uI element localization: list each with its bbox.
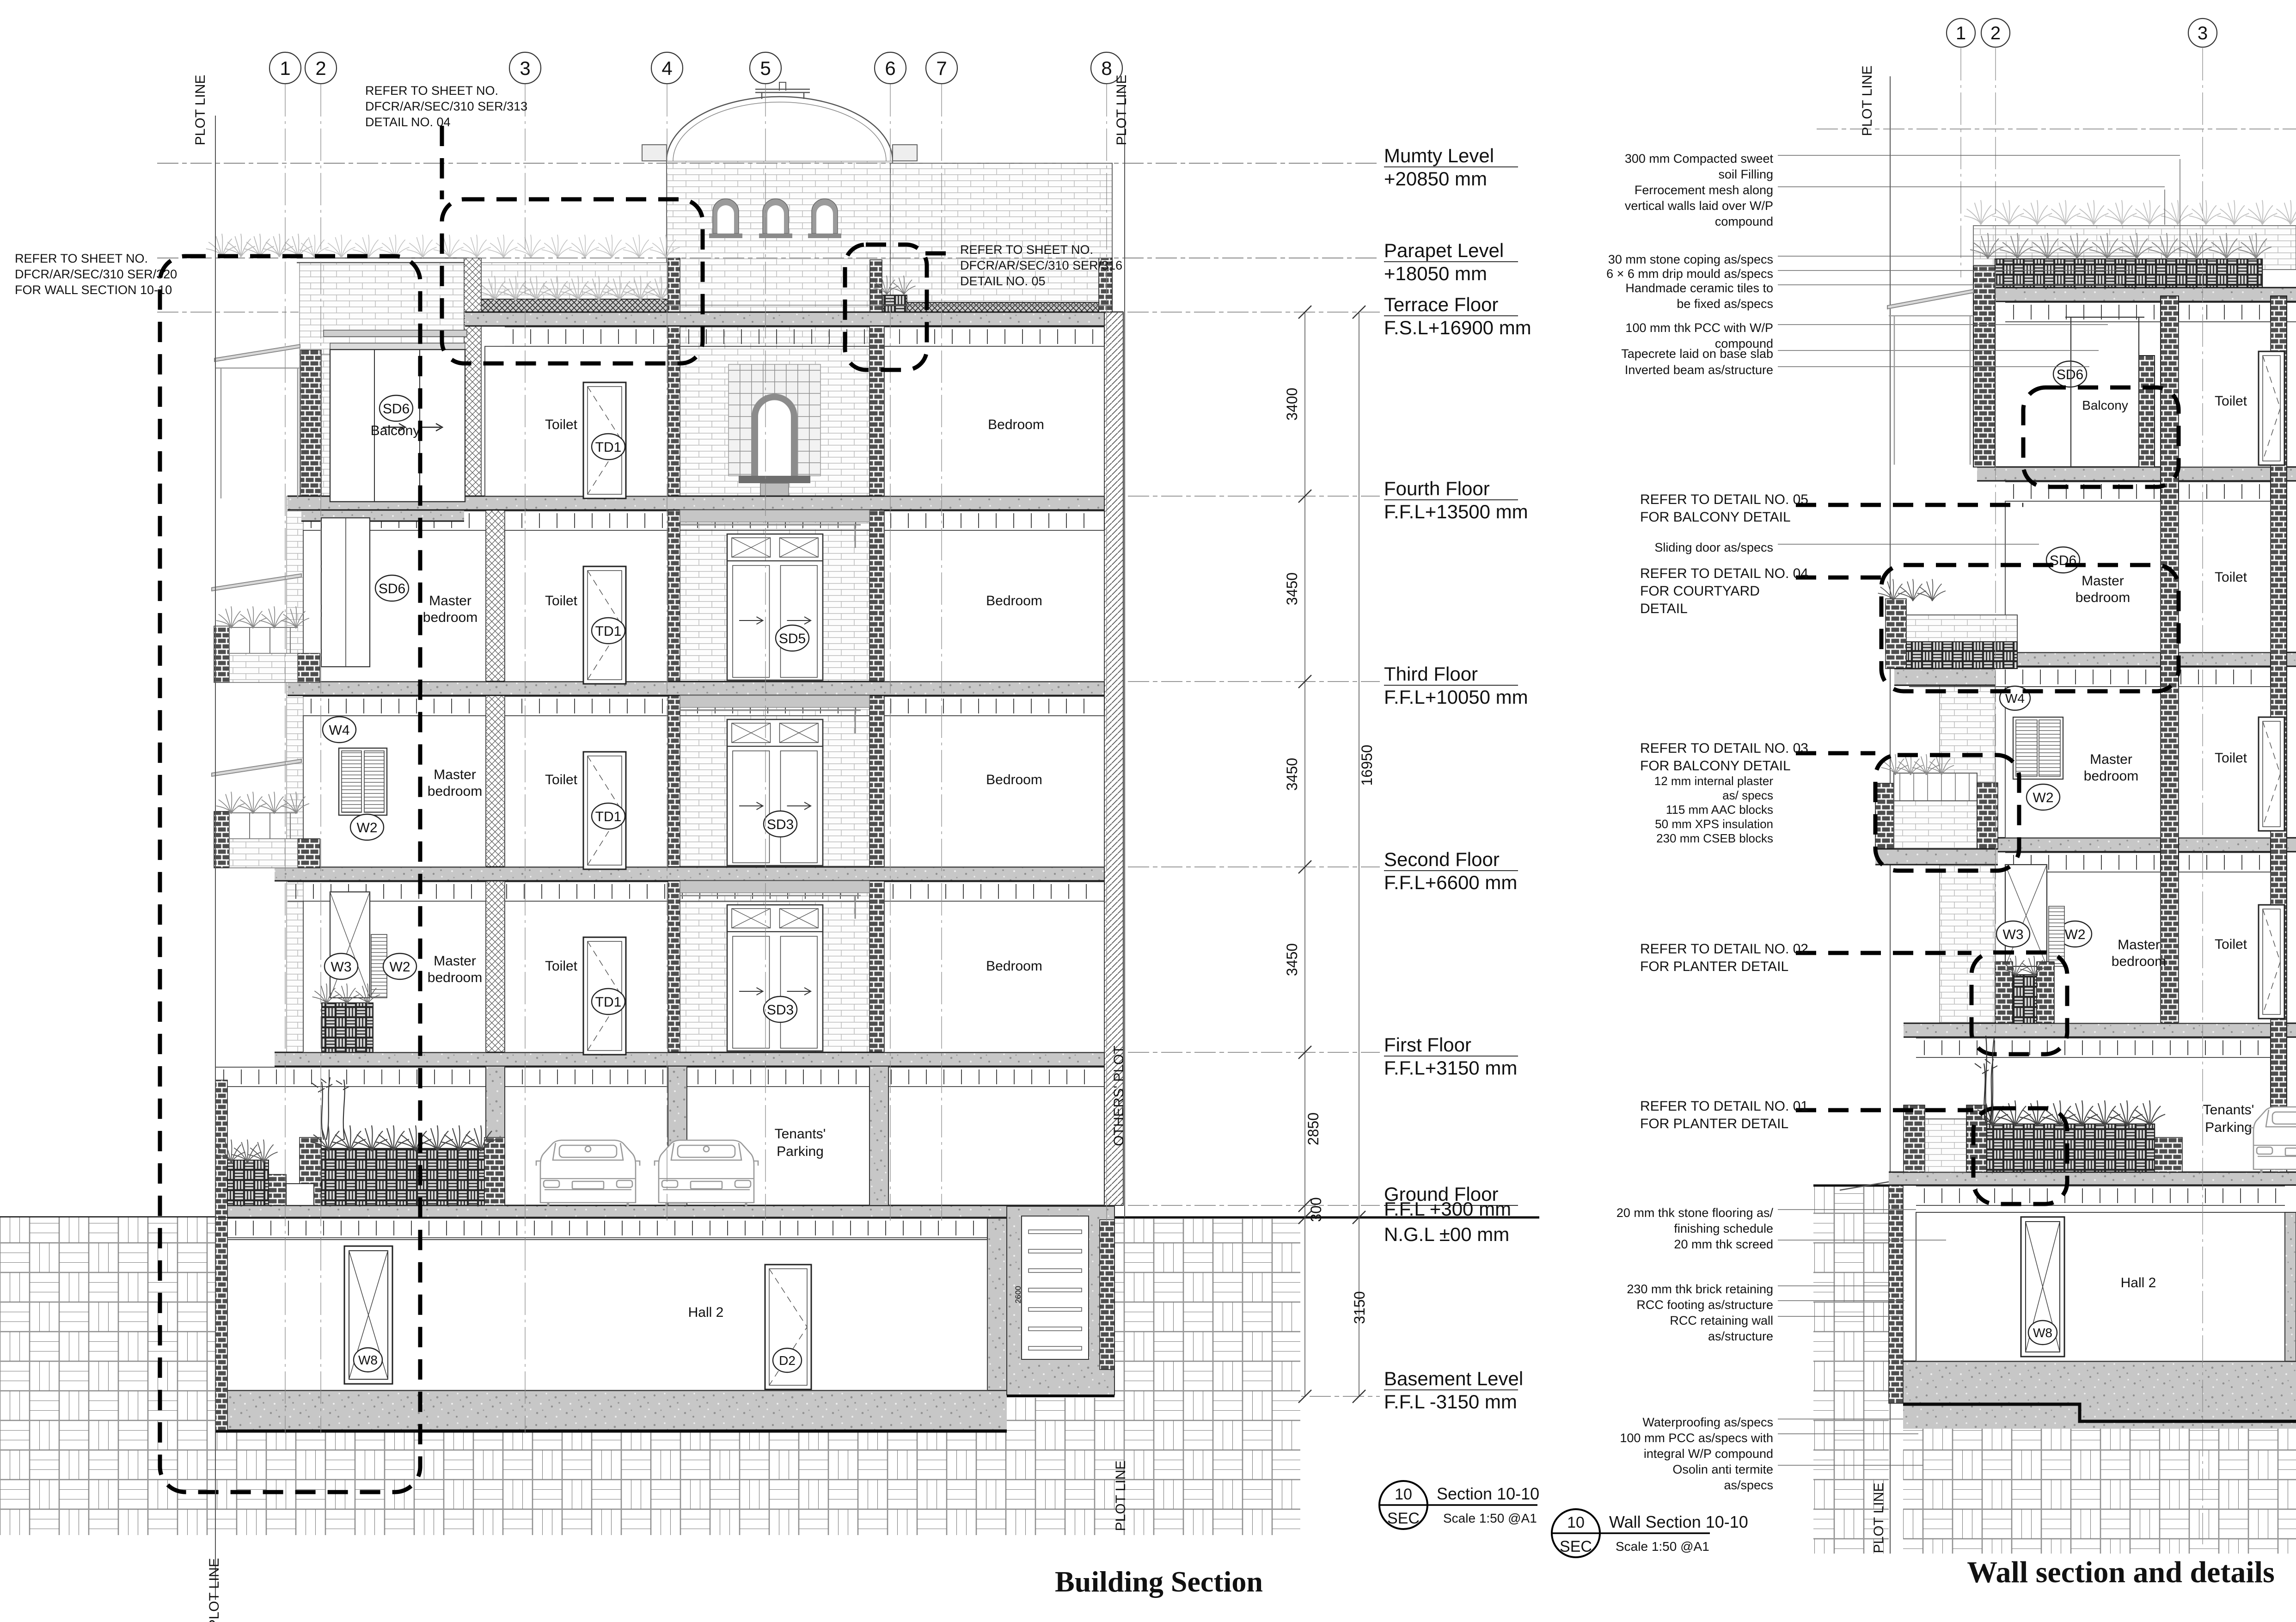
svg-text:Toilet: Toilet [2215,570,2247,585]
svg-text:6: 6 [885,57,895,79]
svg-text:REFER TO SHEET NO.: REFER TO SHEET NO. [15,252,148,265]
svg-text:REFER TO DETAIL NO. 02: REFER TO DETAIL NO. 02 [1640,941,1808,957]
svg-text:vertical walls laid over W/P: vertical walls laid over W/P [1625,199,1773,213]
svg-text:FOR COURTYARD: FOR COURTYARD [1640,584,1760,599]
svg-text:finishing schedule: finishing schedule [1674,1222,1773,1235]
svg-text:115 mm AAC blocks: 115 mm AAC blocks [1666,803,1773,817]
svg-text:TD1: TD1 [595,995,622,1010]
svg-text:be fixed as/specs: be fixed as/specs [1677,297,1773,311]
svg-text:1: 1 [280,57,290,79]
svg-text:as/structure: as/structure [1708,1329,1773,1343]
svg-text:W2: W2 [2033,790,2054,805]
svg-text:Basement Level: Basement Level [1384,1368,1523,1389]
svg-text:TD1: TD1 [595,809,622,824]
svg-text:Building Section: Building Section [1055,1565,1263,1598]
svg-text:soil Filling: soil Filling [1718,167,1773,181]
svg-text:Hall 2: Hall 2 [2121,1275,2156,1290]
svg-text:3450: 3450 [1284,758,1300,791]
svg-text:Toilet: Toilet [545,593,578,608]
svg-text:F.F.L+10050 mm: F.F.L+10050 mm [1384,686,1528,708]
svg-text:+20850 mm: +20850 mm [1384,168,1487,190]
svg-text:F.S.L+16900 mm: F.S.L+16900 mm [1384,317,1531,338]
svg-text:Scale 1:50 @A1: Scale 1:50 @A1 [1443,1511,1537,1525]
svg-text:First Floor: First Floor [1384,1034,1471,1056]
svg-text:Parapet Level: Parapet Level [1384,240,1504,261]
svg-text:REFER TO SHEET NO.: REFER TO SHEET NO. [365,84,498,98]
svg-text:W4: W4 [329,723,350,738]
svg-text:DFCR/AR/SEC/310 SER/316: DFCR/AR/SEC/310 SER/316 [960,258,1122,272]
svg-text:REFER TO DETAIL NO. 01: REFER TO DETAIL NO. 01 [1640,1099,1808,1114]
svg-text:SD3: SD3 [767,817,794,832]
svg-text:PLOT LINE: PLOT LINE [1113,1461,1128,1531]
svg-text:3400: 3400 [1284,387,1300,420]
svg-text:W3: W3 [2003,927,2024,942]
svg-text:12 mm internal plaster: 12 mm internal plaster [1654,774,1774,788]
svg-text:10: 10 [1395,1486,1412,1503]
svg-text:Ferrocement mesh along: Ferrocement mesh along [1635,183,1773,197]
svg-text:PLOT LINE: PLOT LINE [1860,66,1875,136]
svg-text:W2: W2 [390,959,410,975]
svg-text:Master: Master [429,593,471,608]
svg-text:W8: W8 [358,1353,378,1367]
svg-text:F.F.L+6600 mm: F.F.L+6600 mm [1384,872,1517,893]
svg-text:PLOT LINE: PLOT LINE [207,1558,222,1622]
svg-text:Tapecrete laid on base slab: Tapecrete laid on base slab [1621,347,1773,361]
svg-text:W8: W8 [2033,1326,2052,1340]
svg-text:Wall Section 10-10: Wall Section 10-10 [1609,1512,1748,1531]
svg-text:SEC: SEC [1387,1510,1420,1527]
svg-text:Terrace Floor: Terrace Floor [1384,294,1498,315]
svg-text:Wall section and details: Wall section and details [1967,1555,2275,1589]
svg-text:Bedroom: Bedroom [986,593,1042,608]
svg-text:Master: Master [2082,573,2124,589]
svg-text:as/ specs: as/ specs [1722,788,1773,802]
svg-text:3450: 3450 [1284,943,1300,976]
svg-text:PLOT LINE: PLOT LINE [1114,75,1129,146]
svg-text:2: 2 [315,57,326,79]
svg-text:Toilet: Toilet [2215,393,2247,409]
svg-text:300: 300 [1308,1197,1324,1222]
svg-text:W4: W4 [2005,691,2025,706]
svg-text:bedroom: bedroom [428,784,482,799]
svg-text:100 mm thk PCC with W/P: 100 mm thk PCC with W/P [1625,321,1773,335]
svg-text:SD3: SD3 [767,1002,794,1018]
svg-text:Toilet: Toilet [545,417,578,432]
svg-text:7: 7 [936,57,947,79]
svg-text:SD6: SD6 [379,581,405,596]
svg-text:bedroom: bedroom [2084,768,2138,784]
svg-text:N.G.L ±00 mm: N.G.L ±00 mm [1384,1223,1509,1245]
svg-text:F.F.L +300 mm: F.F.L +300 mm [1384,1198,1511,1220]
svg-text:4: 4 [661,57,672,79]
svg-text:3450: 3450 [1284,572,1300,605]
svg-text:Mumty Level: Mumty Level [1384,145,1494,166]
svg-text:30 mm stone coping as/specs: 30 mm stone coping as/specs [1608,252,1773,266]
svg-text:F.F.L -3150 mm: F.F.L -3150 mm [1384,1391,1517,1413]
svg-text:bedroom: bedroom [2076,590,2130,605]
svg-text:Inverted beam as/structure: Inverted beam as/structure [1625,363,1773,377]
svg-text:3: 3 [2198,23,2208,43]
svg-text:8: 8 [1101,57,1112,79]
svg-text:PLOT LINE: PLOT LINE [193,75,208,146]
svg-text:Master: Master [2118,937,2160,952]
svg-text:+18050 mm: +18050 mm [1384,263,1487,284]
svg-text:Toilet: Toilet [545,772,578,787]
svg-text:REFER TO DETAIL NO. 04: REFER TO DETAIL NO. 04 [1640,566,1808,581]
svg-text:Bedroom: Bedroom [986,772,1042,787]
svg-text:50 mm XPS insulation: 50 mm XPS insulation [1655,817,1773,831]
svg-text:2600: 2600 [1014,1286,1022,1303]
svg-text:Toilet: Toilet [2215,750,2247,766]
svg-text:Master: Master [434,953,476,969]
svg-text:3: 3 [520,57,530,79]
svg-text:REFER TO SHEET NO.: REFER TO SHEET NO. [960,243,1093,257]
svg-text:DFCR/AR/SEC/310 SER/320: DFCR/AR/SEC/310 SER/320 [15,267,177,281]
svg-text:DETAIL NO. 04: DETAIL NO. 04 [365,115,451,129]
svg-text:3150: 3150 [1351,1291,1368,1324]
svg-text:Parking: Parking [2205,1120,2252,1135]
svg-text:Tenants': Tenants' [2203,1102,2254,1118]
svg-text:Fourth Floor: Fourth Floor [1384,478,1490,499]
svg-text:SD5: SD5 [779,631,806,646]
svg-text:SEC: SEC [1560,1538,1592,1555]
svg-text:PLOT LINE: PLOT LINE [1871,1483,1886,1554]
svg-text:Toilet: Toilet [545,958,578,974]
svg-text:as/specs: as/specs [1724,1478,1773,1492]
svg-text:Bedroom: Bedroom [986,958,1042,974]
svg-text:Balcony: Balcony [2082,398,2128,412]
svg-text:DFCR/AR/SEC/310 SER/313: DFCR/AR/SEC/310 SER/313 [365,99,527,113]
svg-text:Section 10-10: Section 10-10 [1437,1484,1539,1503]
svg-text:Sliding door as/specs: Sliding door as/specs [1654,541,1773,554]
svg-text:F.F.L+3150 mm: F.F.L+3150 mm [1384,1057,1517,1079]
svg-text:6 × 6 mm drip mould as/specs: 6 × 6 mm drip mould as/specs [1606,267,1773,281]
svg-text:Handmade ceramic tiles to: Handmade ceramic tiles to [1625,281,1773,295]
svg-text:Parking: Parking [777,1144,824,1159]
svg-text:SD6: SD6 [2057,367,2083,382]
svg-text:integral W/P compound: integral W/P compound [1644,1447,1773,1461]
svg-text:F.F.L+13500 mm: F.F.L+13500 mm [1384,501,1528,522]
svg-text:1: 1 [1956,23,1966,43]
svg-text:compound: compound [1715,215,1773,228]
svg-text:2850: 2850 [1305,1112,1322,1145]
svg-text:FOR WALL SECTION 10-10: FOR WALL SECTION 10-10 [15,283,172,297]
svg-text:Third Floor: Third Floor [1384,663,1478,685]
svg-text:FOR PLANTER DETAIL: FOR PLANTER DETAIL [1640,1116,1788,1131]
svg-text:Master: Master [2090,752,2132,767]
svg-text:16950: 16950 [1359,745,1375,786]
svg-text:Hall 2: Hall 2 [688,1305,724,1320]
svg-text:RCC footing as/structure: RCC footing as/structure [1636,1298,1773,1312]
svg-text:Bedroom: Bedroom [988,417,1044,432]
svg-text:5: 5 [760,57,771,79]
svg-text:230 mm thk brick retaining: 230 mm thk brick retaining [1627,1282,1773,1296]
svg-text:Tenants': Tenants' [775,1126,826,1142]
svg-text:100 mm PCC as/specs with: 100 mm PCC as/specs with [1620,1431,1773,1445]
svg-text:2: 2 [1990,23,2001,43]
svg-text:SD6: SD6 [383,401,410,417]
svg-text:300 mm Compacted sweet: 300 mm Compacted sweet [1625,152,1774,166]
svg-text:Osolin anti termite: Osolin anti termite [1672,1462,1773,1476]
svg-text:FOR BALCONY DETAIL: FOR BALCONY DETAIL [1640,758,1791,774]
svg-text:bedroom: bedroom [428,970,482,985]
svg-text:Toilet: Toilet [2215,937,2247,952]
svg-text:W2: W2 [2065,927,2086,942]
svg-text:FOR BALCONY DETAIL: FOR BALCONY DETAIL [1640,510,1791,525]
svg-text:W3: W3 [331,959,352,975]
svg-text:20 mm thk stone flooring as/: 20 mm thk stone flooring as/ [1616,1206,1774,1220]
svg-text:OTHERS' PLOT: OTHERS' PLOT [1111,1045,1127,1146]
svg-text:W2: W2 [357,820,378,836]
svg-text:DETAIL NO. 05: DETAIL NO. 05 [960,274,1046,288]
svg-text:230 mm CSEB blocks: 230 mm CSEB blocks [1656,831,1773,845]
svg-text:REFER TO DETAIL NO. 05: REFER TO DETAIL NO. 05 [1640,492,1808,507]
svg-text:bedroom: bedroom [423,610,478,625]
svg-text:Scale 1:50 @A1: Scale 1:50 @A1 [1616,1539,1709,1554]
svg-text:bedroom: bedroom [2112,954,2166,969]
svg-text:FOR PLANTER DETAIL: FOR PLANTER DETAIL [1640,959,1788,974]
svg-text:Balcony: Balcony [371,423,420,438]
svg-text:10: 10 [1567,1514,1585,1531]
svg-text:DETAIL: DETAIL [1640,601,1688,616]
svg-text:D2: D2 [779,1353,796,1368]
svg-text:RCC retaining wall: RCC retaining wall [1670,1314,1773,1327]
svg-text:Second Floor: Second Floor [1384,848,1500,870]
svg-text:TD1: TD1 [595,624,622,639]
svg-text:TD1: TD1 [595,440,622,455]
svg-text:Waterproofing as/specs: Waterproofing as/specs [1642,1415,1773,1429]
svg-text:20 mm thk screed: 20 mm thk screed [1674,1237,1773,1251]
svg-text:REFER TO DETAIL NO. 03: REFER TO DETAIL NO. 03 [1640,741,1808,756]
svg-text:Master: Master [434,767,476,782]
